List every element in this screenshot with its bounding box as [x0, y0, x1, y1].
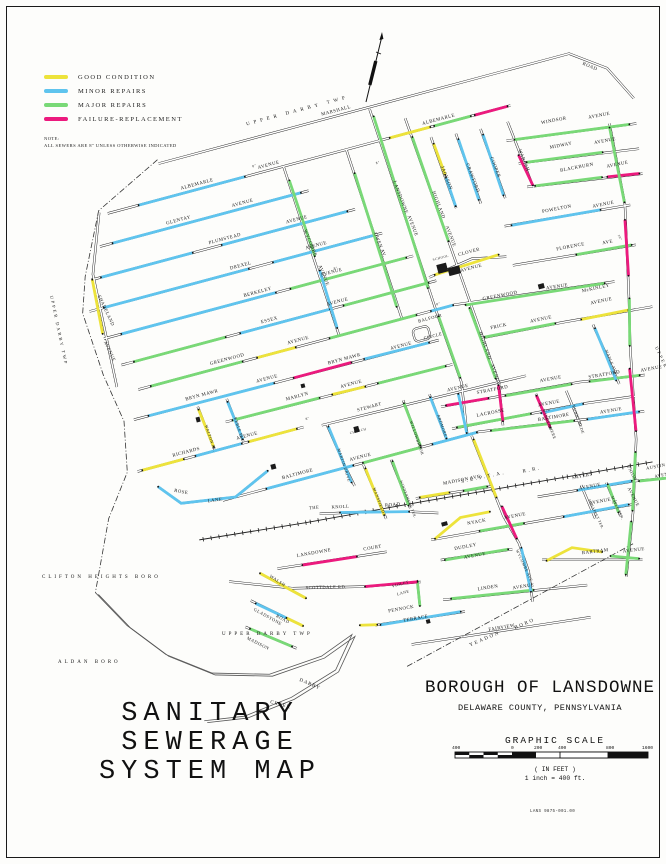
svg-text:CLIFTON HEIGHTS BORO: CLIFTON HEIGHTS BORO: [42, 575, 161, 580]
legend-item: GOOD CONDITION: [44, 70, 264, 84]
borough-title-block: BOROUGH OF LANSDOWNE DELAWARE COUNTY, PE…: [420, 678, 660, 713]
north-arrow-icon: [366, 32, 383, 102]
svg-text:POWELTON: POWELTON: [542, 204, 572, 215]
svg-text:AVENUE: AVENUE: [590, 297, 613, 306]
svg-text:LANSDOWNE: LANSDOWNE: [297, 548, 332, 559]
legend-swatch-b: [44, 89, 68, 93]
svg-text:MIDWAY: MIDWAY: [549, 141, 572, 150]
svg-text:UPPER DARBY TWP: UPPER DARBY TWP: [654, 346, 666, 413]
svg-text:CLOVER: CLOVER: [458, 247, 481, 258]
svg-text:UNION: UNION: [626, 464, 638, 482]
svg-text:8": 8": [375, 160, 380, 165]
svg-text:KNOLL: KNOLL: [331, 504, 349, 510]
map-title: SANITARYSEWERAGESYSTEM MAP: [55, 700, 365, 787]
svg-text:DUDLEY: DUDLEY: [454, 543, 477, 552]
svg-text:TERRACE: TERRACE: [403, 614, 429, 623]
svg-text:VIOLET: VIOLET: [391, 579, 409, 588]
legend-item: MINOR REPAIRS: [44, 84, 264, 98]
svg-text:AVE: AVE: [602, 239, 614, 246]
svg-text:WALTON PL.: WALTON PL.: [204, 424, 218, 452]
svg-text:FRICK: FRICK: [490, 323, 507, 331]
svg-text:UPPER DARBY TWP: UPPER DARBY TWP: [222, 632, 313, 637]
scale-ratio: 1 inch = 400 ft.: [460, 774, 650, 783]
svg-text:UPPER DARBY TWP: UPPER DARBY TWP: [49, 295, 69, 366]
svg-text:ROAD: ROAD: [385, 502, 401, 508]
svg-text:THE: THE: [309, 505, 320, 511]
svg-text:LINDEN: LINDEN: [477, 584, 498, 592]
svg-text:LANSDOWNE: LANSDOWNE: [391, 180, 408, 214]
legend-swatch-g: [44, 103, 68, 107]
svg-text:ROSE: ROSE: [174, 489, 189, 496]
svg-text:CHURCH: CHURCH: [349, 427, 367, 435]
svg-text:HIGHLAND: HIGHLAND: [430, 191, 445, 220]
scale-captions: ( IN FEET ) 1 inch = 400 ft.: [460, 765, 650, 783]
svg-text:S.E.P.T.A.: S.E.P.T.A.: [461, 471, 507, 485]
svg-text:MADISON: MADISON: [246, 635, 270, 651]
svg-text:8": 8": [436, 301, 441, 306]
legend-label: GOOD CONDITION: [78, 74, 156, 81]
svg-text:AVENUE: AVENUE: [623, 547, 646, 555]
svg-text:FLORENCE: FLORENCE: [556, 242, 585, 252]
graphic-scale-bar: 40002004008001600: [452, 745, 653, 758]
scale-in-feet: ( IN FEET ): [460, 765, 650, 774]
borough-title: BOROUGH OF LANSDOWNE: [420, 678, 660, 698]
svg-text:CRAWFORD: CRAWFORD: [464, 163, 480, 194]
svg-text:AVENUE: AVENUE: [579, 483, 602, 492]
map-title-line: SYSTEM MAP: [55, 758, 365, 787]
svg-text:AUSTIN: AUSTIN: [646, 462, 666, 471]
svg-text:AVENUE: AVENUE: [102, 341, 116, 363]
legend: GOOD CONDITIONMINOR REPAIRSMAJOR REPAIRS…: [44, 70, 264, 149]
svg-text:COOPER: COOPER: [488, 156, 501, 179]
map-sheet: UPPER DARBY TWPMARSHALLROADALBEMARLEAVEN…: [0, 0, 666, 864]
svg-text:LACROSSE: LACROSSE: [476, 408, 505, 418]
svg-text:AVENUE: AVENUE: [640, 365, 663, 374]
svg-text:LANE: LANE: [207, 498, 222, 505]
svg-text:SCHOOL: SCHOOL: [432, 254, 449, 262]
svg-text:10": 10": [617, 234, 623, 241]
svg-text:SCOTTDALE RD.: SCOTTDALE RD.: [306, 584, 347, 590]
svg-text:WYCOMBE AVE.: WYCOMBE AVE.: [515, 549, 535, 584]
svg-text:PENNOCK: PENNOCK: [388, 605, 415, 614]
legend-label: FAILURE-REPLACEMENT: [78, 116, 183, 123]
county-subtitle: DELAWARE COUNTY, PENNSYLVANIA: [420, 703, 660, 713]
legend-label: MAJOR REPAIRS: [78, 102, 147, 109]
svg-text:WABASH: WABASH: [516, 149, 529, 172]
svg-text:R.R.: R.R.: [522, 466, 542, 475]
svg-text:CIRCLE: CIRCLE: [423, 331, 443, 341]
legend-label: MINOR REPAIRS: [78, 88, 147, 95]
svg-text:AVENUE: AVENUE: [504, 512, 527, 521]
svg-text:AVENUE: AVENUE: [464, 552, 487, 561]
svg-text:AVENUE: AVENUE: [540, 375, 563, 384]
svg-text:WINDSOR: WINDSOR: [541, 116, 568, 126]
svg-text:NYACK: NYACK: [467, 518, 487, 527]
svg-text:AVENUE: AVENUE: [588, 112, 611, 121]
note-title: NOTE:: [44, 135, 264, 142]
svg-text:ARDMORE: ARDMORE: [436, 414, 448, 438]
legend-swatch-m: [44, 117, 68, 121]
map-title-line: SEWERAGE: [55, 729, 365, 758]
svg-text:ALDAN BORO: ALDAN BORO: [58, 660, 121, 665]
legend-item: MAJOR REPAIRS: [44, 98, 264, 112]
legend-swatch-y: [44, 75, 68, 79]
note-text: ALL SEWERS ARE 8" UNLESS OTHERWISE INDIC…: [44, 142, 264, 149]
graphic-scale-heading: GRAPHIC SCALE: [460, 735, 650, 746]
svg-text:COURT: COURT: [363, 545, 382, 553]
svg-text:BLACKBURN: BLACKBURN: [560, 162, 594, 173]
svg-text:JACKSON: JACKSON: [439, 166, 453, 191]
svg-text:8": 8": [252, 163, 257, 168]
svg-text:LANE: LANE: [396, 588, 410, 596]
map-title-line: SANITARY: [55, 700, 365, 729]
sheet-number: LANS 9875-001.00: [530, 810, 575, 814]
legend-item: FAILURE-REPLACEMENT: [44, 112, 264, 126]
svg-text:WINDERMERE TER.: WINDERMERE TER.: [399, 480, 417, 519]
svg-text:8": 8": [305, 416, 310, 421]
legend-note: NOTE: ALL SEWERS ARE 8" UNLESS OTHERWISE…: [44, 135, 264, 149]
svg-text:BORO: BORO: [514, 618, 536, 631]
